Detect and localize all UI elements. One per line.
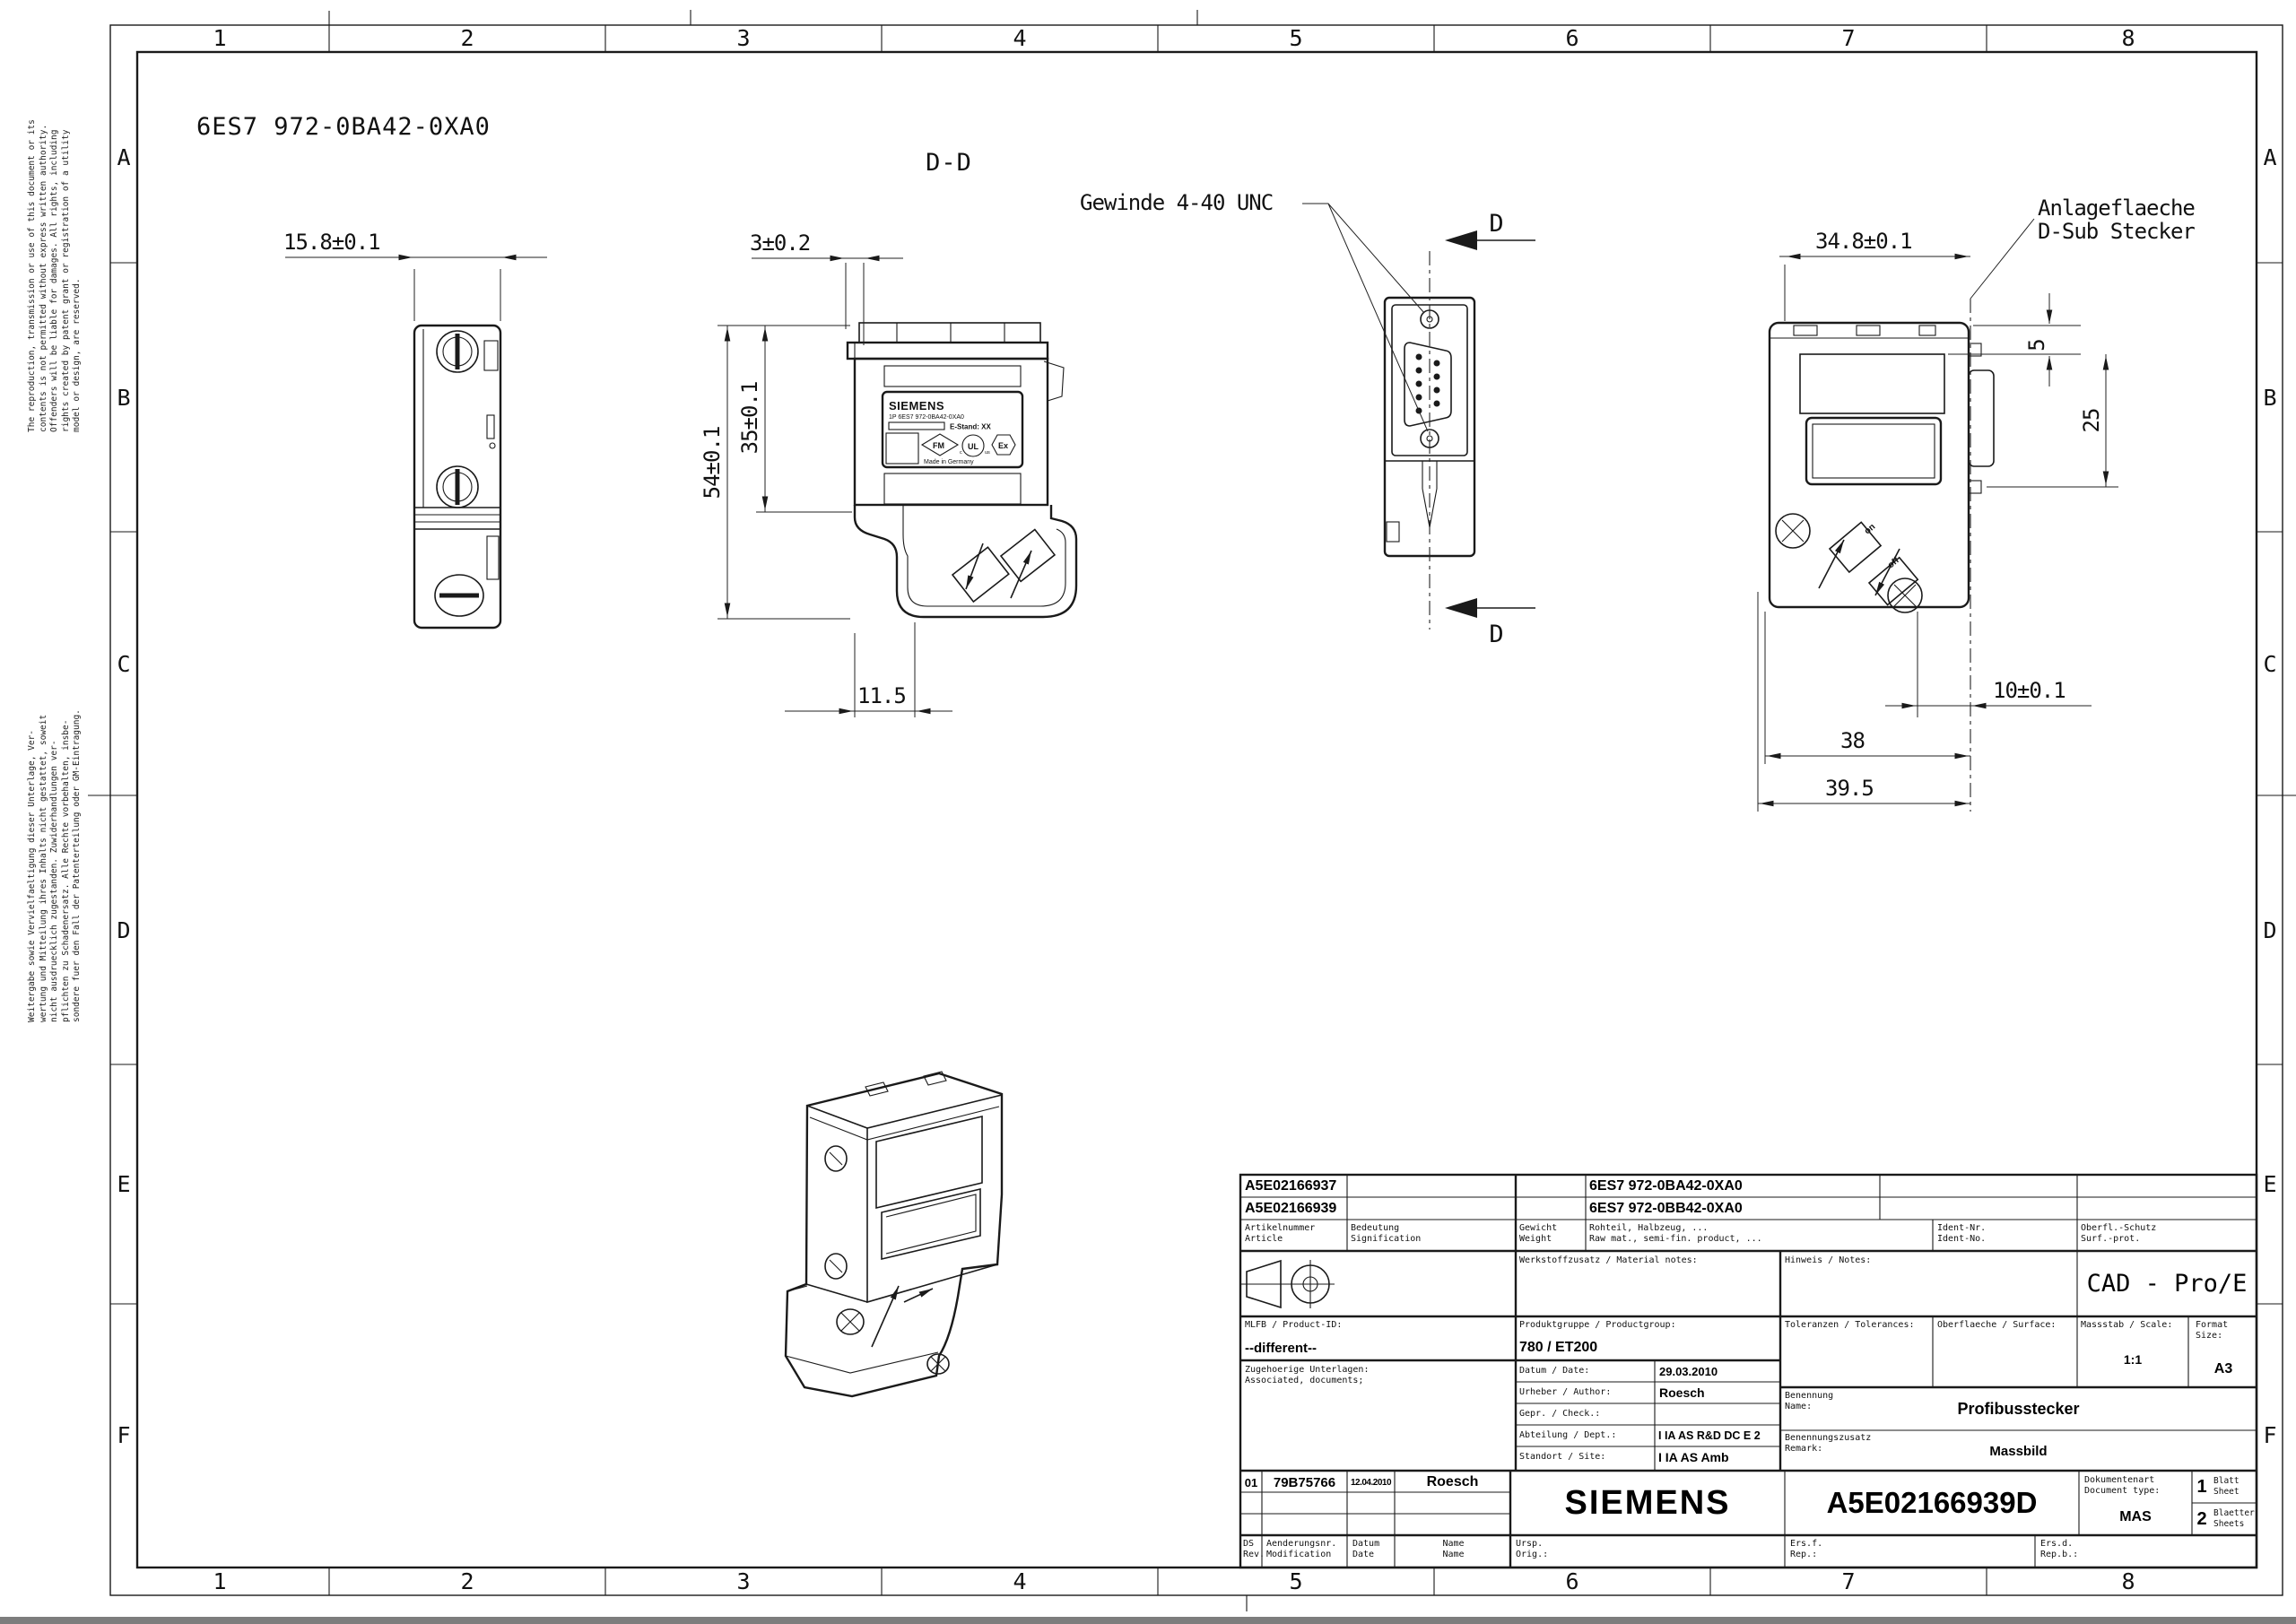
footer-ersf: Ers.f.Rep.:	[1790, 1539, 1822, 1559]
pin	[1434, 401, 1440, 407]
dim-text-face-offset: 10±0.1	[1993, 678, 2066, 703]
drawing-sheet: The reproduction, transmission or use of…	[0, 0, 2296, 1624]
footer-ersd: Ers.d.Rep.b.:	[2040, 1539, 2078, 1559]
site-value: I IA AS Amb	[1658, 1448, 1779, 1466]
grid-col-5: 5	[1289, 25, 1302, 51]
scale-value: 1:1	[2077, 1340, 2188, 1379]
remark-value: Massbild	[1780, 1437, 2257, 1465]
format-value: A3	[2192, 1358, 2255, 1381]
grid-col-8: 8	[2121, 25, 2135, 51]
dim-text-side-width: 15.8±0.1	[283, 230, 380, 255]
contact-face-note-line2: D-Sub Stecker	[2038, 219, 2195, 244]
grid-row-Dr: D	[2263, 917, 2276, 943]
pin	[1434, 360, 1440, 367]
contact-face-note-line1: Anlageflaeche	[2038, 195, 2195, 221]
label-made-in: Made in Germany	[924, 459, 974, 465]
date-value: 29.03.2010	[1659, 1362, 1778, 1380]
cable-release-plate	[952, 547, 1009, 602]
site-label: Standort / Site:	[1519, 1448, 1605, 1466]
view-dsub-face: D D	[1385, 210, 1535, 648]
dim-text-cap-lip: 3±0.2	[750, 230, 810, 256]
document-number: A5E02166939D	[1785, 1471, 2079, 1535]
projection-symbol-icon	[1241, 1260, 1335, 1308]
switch-on-label: on	[1863, 522, 1877, 536]
siemens-logo: SIEMENS	[1510, 1471, 1785, 1535]
grid-col-3b: 3	[736, 1568, 750, 1594]
grid-row-C: C	[117, 651, 130, 677]
sheet-label: BlattSheet	[2213, 1476, 2239, 1497]
dim-text-vent-offset: 5	[2024, 339, 2049, 351]
mlfb-number-1: 6ES7 972-0BA42-0XA0	[1589, 1177, 1885, 1195]
ex-text: Ex	[998, 441, 1008, 450]
dim-text-vent-height: 25	[2079, 409, 2104, 433]
part-name: Profibusstecker	[1780, 1392, 2257, 1426]
grid-col-2: 2	[460, 25, 474, 51]
checked-label: Gepr. / Check.:	[1519, 1405, 1600, 1423]
product-id-label: MLFB / Product-ID:	[1245, 1320, 1342, 1331]
dept-value: I IA AS R&D DC E 2	[1658, 1427, 1779, 1445]
dim-side-width: 15.8±0.1	[283, 230, 547, 321]
pin	[1416, 354, 1422, 360]
dim-cable-exit: 11.5	[785, 622, 952, 717]
dim-face-offset: 10±0.1	[1885, 612, 2092, 717]
label-brand: SIEMENS	[889, 399, 944, 413]
drawing-canvas: 1 2 3 4 5 6 7 8 1 2 3 4 5 6 7 8 A B C D …	[0, 0, 2296, 1624]
pin	[1434, 387, 1440, 394]
grid-col-8b: 8	[2121, 1568, 2135, 1594]
dim-text-body-depth: 38	[1840, 728, 1865, 753]
material-notes-label: Werkstoffzusatz / Material notes:	[1519, 1255, 1698, 1266]
product-id: --different--	[1245, 1338, 1505, 1358]
grid-row-Br: B	[2263, 385, 2276, 411]
tolerances-label: Toleranzen / Tolerances:	[1785, 1320, 1915, 1331]
ul-text: UL	[968, 442, 978, 451]
dim-vent-height: 25	[1987, 354, 2118, 487]
pin	[1416, 395, 1422, 401]
header-article: ArtikelnummerArticle	[1245, 1223, 1315, 1244]
surface-label: Oberflaeche / Surface:	[1937, 1320, 2056, 1331]
grid-row-A: A	[117, 144, 130, 170]
sheets-number: 2	[2192, 1503, 2212, 1535]
footer-date: DatumDate	[1352, 1539, 1379, 1559]
revision-name: Roesch	[1395, 1472, 1510, 1492]
thread-note-text: Gewinde 4-40 UNC	[1080, 190, 1273, 215]
grid-col-1b: 1	[213, 1568, 226, 1594]
thread-note: Gewinde 4-40 UNC	[1080, 190, 1428, 431]
header-weight: GewichtWeight	[1519, 1223, 1557, 1244]
header-meaning: BedeutungSignification	[1351, 1223, 1421, 1244]
grid-row-B: B	[117, 385, 130, 411]
grid-row-Ar: A	[2263, 144, 2276, 170]
section-arrow-top-icon	[1445, 230, 1477, 250]
pin	[1416, 381, 1422, 387]
grid-col-5b: 5	[1289, 1568, 1302, 1594]
grid-col-6: 6	[1565, 25, 1578, 51]
dim-cap-lip: 3±0.2	[750, 230, 903, 345]
grid-row-Fr: F	[2263, 1422, 2276, 1448]
dim-body-width: 34.8±0.1	[1779, 229, 1970, 321]
revision-index: 01	[1240, 1472, 1262, 1492]
article-number-1: A5E02166937	[1245, 1177, 1345, 1195]
grid-col-6b: 6	[1565, 1568, 1578, 1594]
footer-modification: Aenderungsnr.Modification	[1266, 1539, 1336, 1559]
format-label: FormatSize:	[2196, 1320, 2228, 1341]
dim-total-depth: 39.5	[1758, 592, 1970, 812]
dsub-protrusion	[1969, 370, 1994, 466]
product-group: 780 / ET200	[1519, 1338, 1775, 1358]
doc-type-value: MAS	[2079, 1503, 2192, 1532]
grid-labels: 1 2 3 4 5 6 7 8 1 2 3 4 5 6 7 8 A B C D …	[117, 25, 2276, 1594]
contact-face-note: Anlageflaeche D-Sub Stecker	[1970, 195, 2195, 299]
grid-col-7: 7	[1841, 25, 1855, 51]
associated-docs-label: Zugehoerige Unterlagen:Associated, docum…	[1245, 1365, 1369, 1385]
footer-rev: DSRev.	[1243, 1539, 1265, 1559]
dim-body-depth: 38	[1765, 612, 1970, 764]
section-arrow-bottom-label: D	[1489, 621, 1504, 648]
author-label: Urheber / Author:	[1519, 1384, 1611, 1402]
grid-row-F: F	[117, 1422, 130, 1448]
header-surface-protection: Oberfl.-SchutzSurf.-prot.	[2081, 1223, 2156, 1244]
scale-label: Massstab / Scale:	[2081, 1320, 2172, 1331]
grid-col-7b: 7	[1841, 1568, 1855, 1594]
grid-row-Cr: C	[2263, 651, 2276, 677]
revision-change-no: 79B75766	[1262, 1472, 1347, 1492]
grid-col-2b: 2	[460, 1568, 474, 1594]
author-value: Roesch	[1659, 1384, 1778, 1402]
footer-orig: Ursp.Orig.:	[1516, 1539, 1548, 1559]
grid-col-4b: 4	[1013, 1568, 1026, 1594]
window-edge	[0, 1617, 2296, 1624]
view-right: on off	[1770, 299, 1994, 812]
view-side	[414, 326, 500, 628]
pin	[1416, 368, 1422, 374]
grid-col-4: 4	[1013, 25, 1026, 51]
footer-name: NameName	[1398, 1539, 1509, 1559]
header-ident-no: Ident-Nr.Ident-No.	[1937, 1223, 1986, 1244]
sheet-frame	[88, 10, 2296, 1611]
dim-text-total-depth: 39.5	[1825, 776, 1874, 801]
dept-label: Abteilung / Dept.:	[1519, 1427, 1616, 1445]
dim-upper-height: 35±0.1	[737, 326, 852, 512]
header-raw-material: Rohteil, Halbzeug, ...Raw mat., semi-fin…	[1589, 1223, 1762, 1244]
view-isometric	[786, 1072, 1002, 1396]
revision-date: 12.04.2010	[1347, 1472, 1395, 1492]
section-label: D-D	[926, 149, 972, 177]
label-estand: E-Stand: XX	[950, 423, 991, 431]
pin	[1434, 374, 1440, 380]
date-label: Datum / Date:	[1519, 1362, 1589, 1380]
mlfb-number-2: 6ES7 972-0BB42-0XA0	[1589, 1199, 1885, 1218]
section-arrow-bottom-icon	[1445, 598, 1477, 618]
dim-text-body-width: 34.8±0.1	[1815, 229, 1912, 254]
dim-text-upper-height: 35±0.1	[737, 382, 762, 455]
notes-label: Hinweis / Notes:	[1785, 1255, 1871, 1266]
dim-text-cable-exit: 11.5	[857, 683, 906, 708]
grid-row-D: D	[117, 917, 130, 943]
dim-total-height: 54±0.1	[700, 326, 850, 619]
label-order-line: 1P 6ES7 972-0BA42-0XA0	[889, 414, 964, 421]
page-title: 6ES7 972-0BA42-0XA0	[196, 113, 491, 141]
ul-us-text: us	[985, 450, 990, 456]
fm-text: FM	[933, 441, 944, 450]
grid-row-Er: E	[2263, 1171, 2276, 1197]
grid-col-3: 3	[736, 25, 750, 51]
view-front: SIEMENS 1P 6ES7 972-0BA42-0XA0 E-Stand: …	[848, 323, 1076, 617]
article-number-2: A5E02166939	[1245, 1199, 1345, 1218]
sheets-label: BlaetterSheets	[2213, 1508, 2255, 1529]
grid-row-E: E	[117, 1171, 130, 1197]
cad-system: CAD - Pro/E	[2077, 1251, 2257, 1316]
dim-text-total-height: 54±0.1	[700, 427, 725, 499]
grid-col-1: 1	[213, 25, 226, 51]
product-group-label: Produktgruppe / Productgroup:	[1519, 1320, 1676, 1331]
doc-type-label: DokumentenartDocument type:	[2084, 1475, 2160, 1496]
ul-c-text: c	[960, 450, 962, 456]
sheet-number: 1	[2192, 1471, 2212, 1503]
section-arrow-top-label: D	[1489, 210, 1504, 238]
dsub-connector-outline	[1405, 343, 1451, 426]
